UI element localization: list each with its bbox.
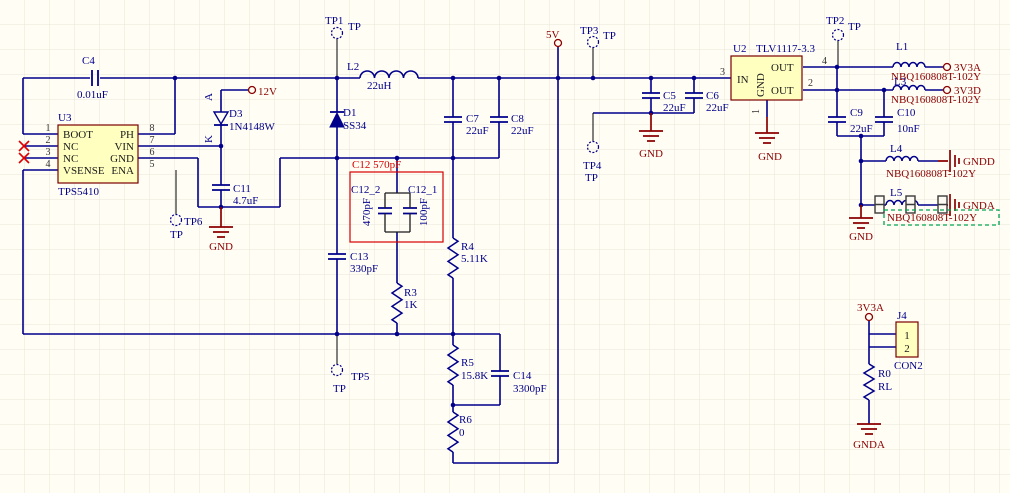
u2-pin-out-top: OUT <box>771 62 794 74</box>
c9-ref[interactable]: C9 <box>850 107 863 119</box>
c11-value[interactable]: 4.7uF <box>233 195 258 207</box>
c4-ref[interactable]: C4 <box>82 55 95 67</box>
r3-ref[interactable]: R3 <box>404 287 417 299</box>
net-label-5v[interactable]: 5V <box>546 29 560 41</box>
gnd-label-c5[interactable]: GND <box>639 148 663 160</box>
c10-value[interactable]: 10nF <box>897 123 920 135</box>
gnda-label-load[interactable]: GNDA <box>853 439 885 451</box>
u2-num-2: 2 <box>808 78 813 89</box>
c10-ref[interactable]: C10 <box>897 107 916 119</box>
u2-value[interactable]: TLV1117-3.3 <box>756 43 815 55</box>
l5-ref[interactable]: L5 <box>890 187 903 199</box>
sheet-grid <box>0 0 1010 493</box>
tp2-ref[interactable]: TP2 <box>826 15 844 27</box>
c14-value[interactable]: 3300pF <box>513 383 547 395</box>
u3-num-7: 7 <box>150 135 155 146</box>
r0-ref[interactable]: R0 <box>878 368 891 380</box>
u2-pin-out-bot: OUT <box>771 85 794 97</box>
u3-pin-vsense: VSENSE <box>63 165 105 177</box>
tp4-ref[interactable]: TP4 <box>583 160 602 172</box>
r3-value[interactable]: 1K <box>404 299 418 311</box>
l3-ref[interactable]: L3 <box>894 76 907 88</box>
l1-ref[interactable]: L1 <box>896 41 908 53</box>
l3-value[interactable]: NBQ160808T-102Y <box>891 94 981 106</box>
u3-ref[interactable]: U3 <box>58 112 72 124</box>
j4-ref[interactable]: J4 <box>897 310 907 322</box>
tp1-type[interactable]: TP <box>348 21 361 33</box>
d1-value[interactable]: SS34 <box>343 120 367 132</box>
c6-ref[interactable]: C6 <box>706 90 719 102</box>
c8-ref[interactable]: C8 <box>511 113 524 125</box>
u3-pin-gnd: GND <box>110 153 134 165</box>
c14-ref[interactable]: C14 <box>513 370 532 382</box>
c8-value[interactable]: 22uF <box>511 125 534 137</box>
r4-value[interactable]: 5.11K <box>461 253 488 265</box>
c4-value[interactable]: 0.01uF <box>77 89 108 101</box>
d3-cathode-label: K <box>203 135 215 143</box>
r6-value[interactable]: 0 <box>459 427 465 439</box>
c7-ref[interactable]: C7 <box>466 113 479 125</box>
net-label-12v[interactable]: 12V <box>258 86 277 98</box>
u3-pin-ena: ENA <box>111 165 134 177</box>
u3-num-8: 8 <box>150 123 155 134</box>
tp6-type[interactable]: TP <box>170 229 183 241</box>
u2-pin-gnd: GND <box>755 73 767 97</box>
u3-value[interactable]: TPS5410 <box>58 186 99 198</box>
c13-value[interactable]: 330pF <box>350 263 378 275</box>
u3-pin-ph: PH <box>120 129 134 141</box>
tp6-ref[interactable]: TP6 <box>184 216 203 228</box>
j4-num-1: 1 <box>904 330 910 342</box>
gnd-label-c9[interactable]: GND <box>849 231 873 243</box>
c11-ref[interactable]: C11 <box>233 183 251 195</box>
u2-num-4: 4 <box>822 56 827 67</box>
u3-pin-vin: VIN <box>114 141 134 153</box>
u3-num-1: 1 <box>46 123 51 134</box>
net-label-gndd[interactable]: GNDD <box>963 156 995 168</box>
l2-value[interactable]: 22uH <box>367 80 392 92</box>
u3-pin-boot: BOOT <box>63 129 93 141</box>
u3-num-2: 2 <box>46 135 51 146</box>
d1-ref[interactable]: D1 <box>343 107 356 119</box>
u2-num-1: 1 <box>751 109 762 114</box>
tp4-type[interactable]: TP <box>585 172 598 184</box>
j4-value[interactable]: CON2 <box>894 360 923 372</box>
net-label-3v3a-load[interactable]: 3V3A <box>857 302 884 314</box>
tp3-ref[interactable]: TP3 <box>580 25 599 37</box>
u3-num-3: 3 <box>46 147 51 158</box>
j4-num-2: 2 <box>904 343 910 355</box>
u2-ref[interactable]: U2 <box>733 43 746 55</box>
r4-ref[interactable]: R4 <box>461 241 474 253</box>
u2-pin-in: IN <box>737 74 749 86</box>
l4-value[interactable]: NBQ160808T-102Y <box>886 168 976 180</box>
l5-value[interactable]: NBQ160808T-102Y <box>887 212 977 224</box>
l2-ref[interactable]: L2 <box>347 61 359 73</box>
r6-ref[interactable]: R6 <box>459 414 472 426</box>
tp3-type[interactable]: TP <box>603 30 616 42</box>
d3-ref[interactable]: D3 <box>229 108 243 120</box>
u3-pin-nc2: NC <box>63 141 78 153</box>
tp5-ref[interactable]: TP5 <box>351 371 370 383</box>
r5-ref[interactable]: R5 <box>461 357 474 369</box>
c13-ref[interactable]: C13 <box>350 251 369 263</box>
c5-value[interactable]: 22uF <box>663 102 686 114</box>
tp5-type[interactable]: TP <box>333 383 346 395</box>
gnd-label-c11[interactable]: GND <box>209 241 233 253</box>
r5-value[interactable]: 15.8K <box>461 370 488 382</box>
c6-value[interactable]: 22uF <box>706 102 729 114</box>
r0-value[interactable]: RL <box>878 381 892 393</box>
u2-num-3: 3 <box>720 67 725 78</box>
c7-value[interactable]: 22uF <box>466 125 489 137</box>
schematic-canvas[interactable]: U3 TPS5410 BOOT NC NC VSENSE PH VIN GND … <box>0 0 1010 493</box>
c12-1-value[interactable]: 100pF <box>418 198 430 226</box>
gnd-label-u2[interactable]: GND <box>758 151 782 163</box>
u3-pin-nc3: NC <box>63 153 78 165</box>
c12-1-ref[interactable]: C12_1 <box>408 184 437 196</box>
c5-ref[interactable]: C5 <box>663 90 676 102</box>
u3-num-6: 6 <box>150 147 155 158</box>
schematic-sheet: U3 TPS5410 BOOT NC NC VSENSE PH VIN GND … <box>0 0 1010 493</box>
d3-value[interactable]: 1N4148W <box>229 121 275 133</box>
tp2-type[interactable]: TP <box>848 21 861 33</box>
u3-num-5: 5 <box>150 159 155 170</box>
c12-note[interactable]: C12 570pF <box>352 159 401 171</box>
c12-2-value[interactable]: 470pF <box>361 198 373 226</box>
c9-value[interactable]: 22uF <box>850 123 873 135</box>
c12-2-ref[interactable]: C12_2 <box>351 184 380 196</box>
d3-anode-label: A <box>203 93 215 101</box>
l4-ref[interactable]: L4 <box>890 143 903 155</box>
tp1-ref[interactable]: TP1 <box>325 15 343 27</box>
u3-num-4: 4 <box>46 159 51 170</box>
